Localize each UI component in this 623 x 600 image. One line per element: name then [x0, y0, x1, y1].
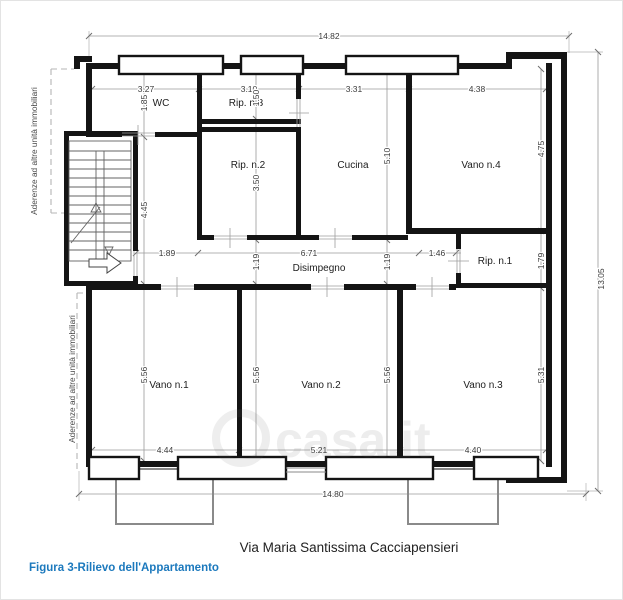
- dim-rip1-depth: 1.79: [536, 252, 546, 269]
- dim-cucina-depth: 5.10: [382, 147, 392, 164]
- dim-vano4-width: 4.38: [469, 84, 486, 94]
- adjacency-label-lower: Aderenze ad altre unità immobiliari: [67, 315, 77, 443]
- room-label-wc: WC: [153, 98, 170, 109]
- window-bottom-1: [89, 457, 139, 479]
- adjacency-label-upper: Aderenze ad altre unità immobiliari: [29, 87, 39, 215]
- dim-overall-right: 13.05: [596, 268, 606, 290]
- room-label-rip2: Rip. n.2: [231, 160, 266, 171]
- figure-caption: Figura 3-Rilievo dell'Appartamento: [29, 562, 219, 574]
- dim-corridor-width-right: 1.19: [382, 253, 392, 270]
- dim-vano4-depth: 4.75: [536, 140, 546, 157]
- window-bottom-4: [474, 457, 538, 479]
- figure-canvas: Aderenze ad altre unità immobiliari Ader…: [0, 0, 623, 600]
- dim-rip2-depth: 3.50: [251, 174, 261, 191]
- address-caption: Via Maria Santissima Cacciapensieri: [240, 540, 459, 555]
- room-label-vano2: Vano n.2: [301, 380, 341, 391]
- dim-cucina-width: 3.31: [346, 84, 363, 94]
- dim-vano1-width: 4.44: [157, 445, 174, 455]
- room-label-vano3: Vano n.3: [463, 380, 503, 391]
- dim-stair-depth: 4.45: [139, 201, 149, 218]
- dim-vano3-width: 4.40: [465, 445, 482, 455]
- watermark-text: casa.it: [275, 412, 431, 468]
- dim-corridor-width-left: 1.19: [251, 253, 261, 270]
- room-label-vano1: Vano n.1: [149, 380, 189, 391]
- dim-wc-width: 3.27: [138, 84, 155, 94]
- dim-wc-depth: 1.85: [139, 94, 149, 111]
- room-label-cucina: Cucina: [337, 160, 369, 171]
- dim-corridor-stub: 1.46: [429, 248, 446, 258]
- watermark: casa.it: [216, 412, 431, 468]
- staircase: [69, 141, 131, 273]
- boundary-labels: Aderenze ad altre unità immobiliari Ader…: [29, 87, 77, 443]
- window-top-1: [119, 56, 223, 74]
- interior-walls: [64, 63, 546, 461]
- window-top-2: [241, 56, 303, 74]
- dim-vano2-depth-right: 5.56: [382, 366, 392, 383]
- window-top-3: [346, 56, 458, 74]
- room-label-rip1: Rip. n.1: [478, 256, 513, 267]
- room-label-vano4: Vano n.4: [461, 160, 501, 171]
- dim-entry-width: 1.89: [159, 248, 176, 258]
- balcony-door-threshold: [286, 468, 326, 472]
- dim-rip3-depth: 1.50: [251, 89, 261, 106]
- entry-arrow-icon: [89, 253, 121, 273]
- floor-plan-svg: Aderenze ad altre unità immobiliari Ader…: [1, 1, 623, 600]
- stair-down-arrow-icon: [105, 247, 113, 255]
- dim-vano2-depth-left: 5.56: [251, 366, 261, 383]
- room-label-disimpegno: Disimpegno: [293, 263, 346, 274]
- dim-vano1-depth: 5.56: [139, 366, 149, 383]
- dim-vano3-depth: 5.31: [536, 366, 546, 383]
- dim-overall-top: 14.82: [318, 31, 340, 41]
- balconies: [116, 469, 498, 524]
- dim-overall-bottom: 14.80: [322, 489, 344, 499]
- dim-corridor-length: 6.71: [301, 248, 318, 258]
